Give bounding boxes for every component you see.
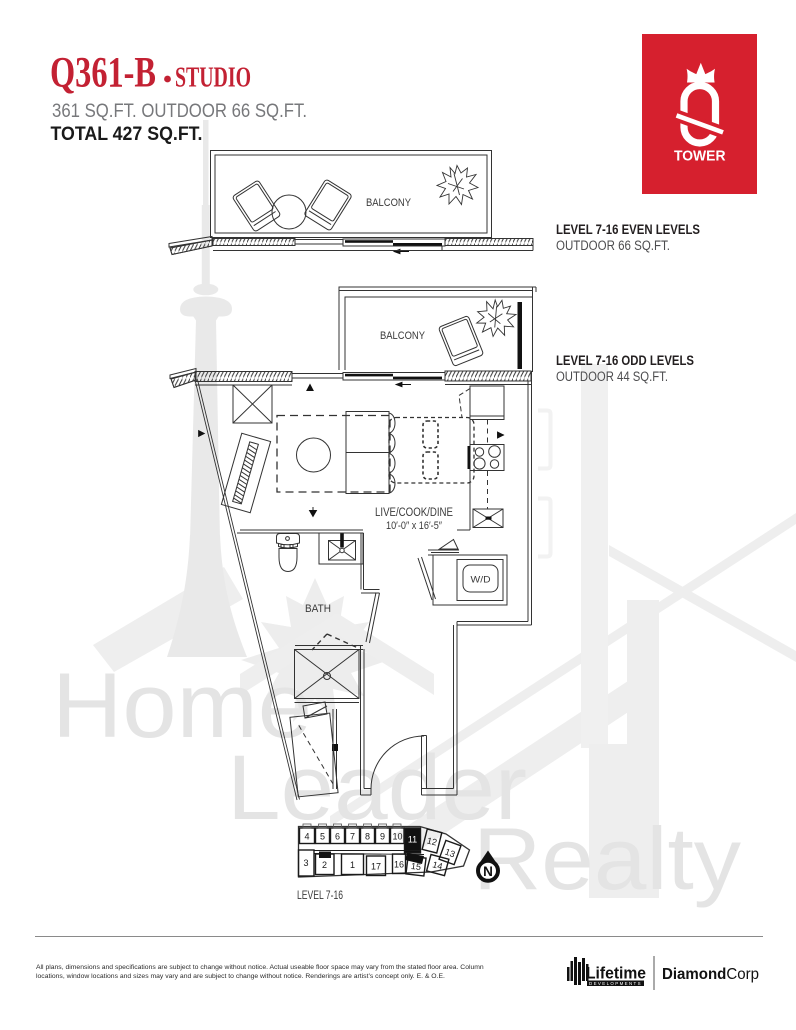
svg-text:W/D: W/D bbox=[471, 575, 491, 586]
svg-text:10: 10 bbox=[392, 832, 402, 842]
svg-text:OUTDOOR 66 SQ.FT.: OUTDOOR 66 SQ.FT. bbox=[556, 238, 670, 253]
svg-text:9: 9 bbox=[380, 832, 385, 842]
svg-text:6: 6 bbox=[335, 832, 340, 842]
svg-text:10′-0″ x 16′-5″: 10′-0″ x 16′-5″ bbox=[386, 520, 442, 532]
svg-text:11: 11 bbox=[408, 835, 417, 845]
svg-text:LEVEL 7-16 ODD LEVELS: LEVEL 7-16 ODD LEVELS bbox=[556, 353, 694, 368]
svg-text:DiamondCorp: DiamondCorp bbox=[662, 966, 759, 983]
svg-text:locations, window locations an: locations, window locations and sizes ma… bbox=[36, 973, 445, 980]
svg-text:OUTDOOR 44 SQ.FT.: OUTDOOR 44 SQ.FT. bbox=[556, 369, 668, 384]
svg-text:2: 2 bbox=[322, 860, 327, 870]
svg-text:12: 12 bbox=[426, 835, 438, 847]
svg-text:LEVEL 7-16 EVEN LEVELS: LEVEL 7-16 EVEN LEVELS bbox=[556, 222, 700, 237]
svg-text:361 SQ.FT. OUTDOOR 66 SQ.FT.: 361 SQ.FT. OUTDOOR 66 SQ.FT. bbox=[52, 101, 307, 122]
svg-text:BATH: BATH bbox=[305, 603, 331, 615]
svg-text:BALCONY: BALCONY bbox=[366, 197, 412, 209]
svg-text:1: 1 bbox=[350, 860, 355, 870]
svg-text:LEVEL 7-16: LEVEL 7-16 bbox=[297, 890, 343, 902]
svg-text:Q361-B: Q361-B bbox=[50, 50, 156, 97]
svg-text:Lifetime: Lifetime bbox=[586, 964, 646, 983]
svg-text:4: 4 bbox=[304, 832, 309, 842]
svg-text:LIVE/COOK/DINE: LIVE/COOK/DINE bbox=[375, 507, 453, 519]
svg-text:DEVELOPMENTS: DEVELOPMENTS bbox=[589, 981, 642, 986]
svg-text:5: 5 bbox=[320, 832, 325, 842]
svg-text:STUDIO: STUDIO bbox=[175, 62, 251, 94]
svg-text:Realty: Realty bbox=[473, 809, 741, 908]
svg-text:TOWER: TOWER bbox=[674, 148, 726, 164]
svg-text:All plans, dimensions and spec: All plans, dimensions and specifications… bbox=[36, 964, 484, 971]
svg-text:15: 15 bbox=[410, 861, 421, 872]
svg-text:13: 13 bbox=[444, 847, 457, 860]
svg-text:3: 3 bbox=[303, 858, 308, 868]
svg-text:16: 16 bbox=[394, 860, 404, 870]
svg-text:BALCONY: BALCONY bbox=[380, 330, 426, 342]
svg-text:8: 8 bbox=[365, 832, 370, 842]
svg-text:7: 7 bbox=[350, 832, 355, 842]
svg-text:TOTAL 427 SQ.FT.: TOTAL 427 SQ.FT. bbox=[51, 124, 203, 145]
svg-text:N: N bbox=[483, 864, 493, 879]
svg-text:17: 17 bbox=[371, 862, 381, 872]
